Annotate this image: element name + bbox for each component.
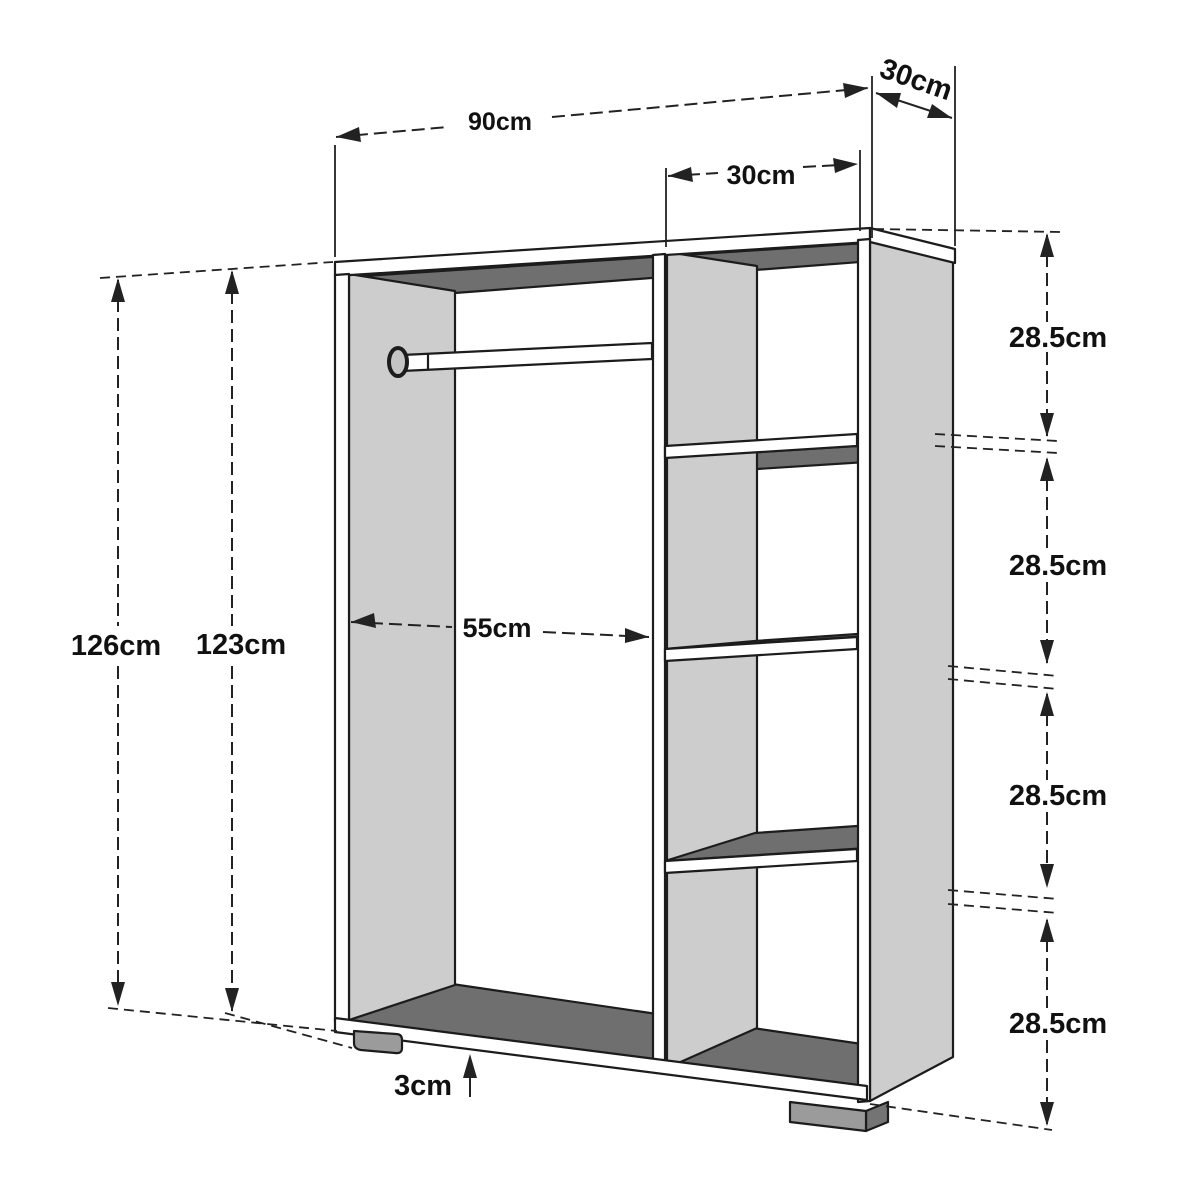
dim-label-hanging-55: 55cm xyxy=(462,613,531,643)
diagram-canvas: 90cm 30cm 30cm 126cm xyxy=(0,0,1200,1200)
foot-right xyxy=(790,1102,888,1131)
dim-label-shelf-spacing-2: 28.5cm xyxy=(1009,550,1107,582)
foot-left xyxy=(354,1031,402,1053)
dim-label-foot-3: 3cm xyxy=(394,1070,452,1102)
wardrobe-unit xyxy=(335,228,955,1131)
dim-label-height-123: 123cm xyxy=(196,629,286,661)
dim-label-shelf-width-30: 30cm xyxy=(726,160,795,190)
right-panel-face xyxy=(870,239,953,1101)
dim-shelf-spacing-1: 28.5cm xyxy=(1009,233,1107,437)
dim-shelf-spacing-3: 28.5cm xyxy=(1009,692,1107,888)
dim-label-shelf-spacing-4: 28.5cm xyxy=(1009,1008,1107,1040)
center-divider xyxy=(653,254,665,1065)
dim-foot-3: 3cm xyxy=(394,1054,477,1102)
dim-depth-30: 30cm xyxy=(876,53,957,246)
wardrobe-diagram: 90cm 30cm 30cm 126cm xyxy=(0,0,1200,1200)
dim-shelf-spacing-2: 28.5cm xyxy=(1009,457,1107,664)
foot-right-side xyxy=(866,1102,888,1131)
dim-label-width-90: 90cm xyxy=(468,108,532,136)
dim-shelf-spacing-4: 28.5cm xyxy=(1009,918,1107,1126)
dim-label-height-126: 126cm xyxy=(71,630,161,662)
left-panel xyxy=(335,274,349,1021)
dim-height-123: 123cm xyxy=(196,270,352,1048)
rod-flange-icon xyxy=(389,348,407,376)
left-panel-face xyxy=(349,274,455,1020)
dim-label-shelf-spacing-1: 28.5cm xyxy=(1009,322,1107,354)
foot-right-front xyxy=(790,1102,866,1131)
right-panel xyxy=(858,239,870,1102)
dim-label-shelf-spacing-3: 28.5cm xyxy=(1009,780,1107,812)
